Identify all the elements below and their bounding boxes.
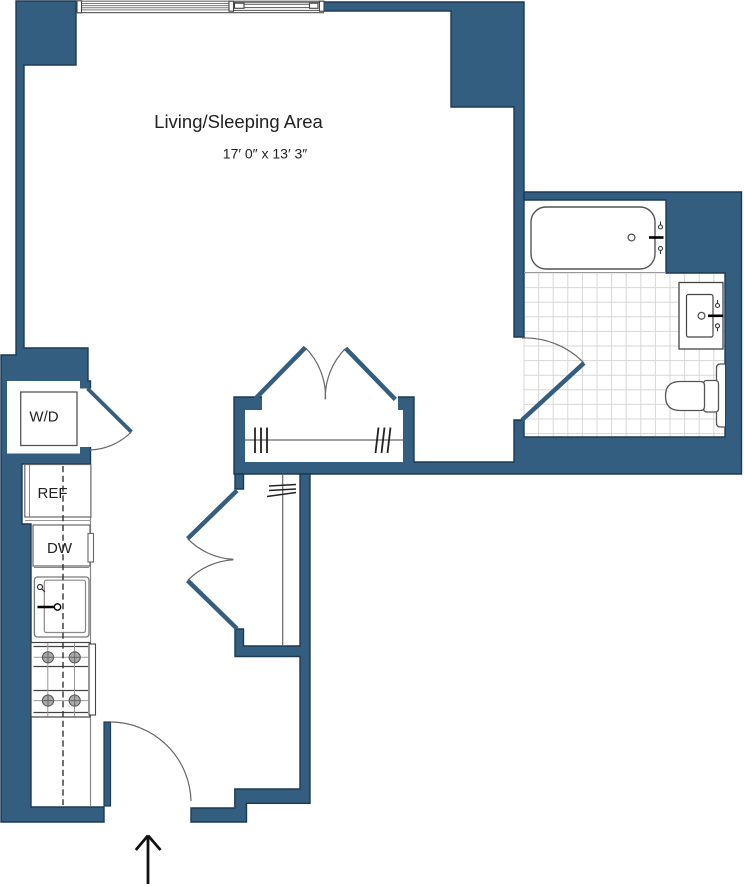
svg-text:17′ 0″ x 13′ 3″: 17′ 0″ x 13′ 3″ <box>223 146 307 162</box>
svg-text:Living/Sleeping Area: Living/Sleeping Area <box>154 111 323 132</box>
svg-text:REF: REF <box>38 485 68 502</box>
svg-text:W/D: W/D <box>29 409 58 426</box>
svg-text:DW: DW <box>47 540 73 557</box>
